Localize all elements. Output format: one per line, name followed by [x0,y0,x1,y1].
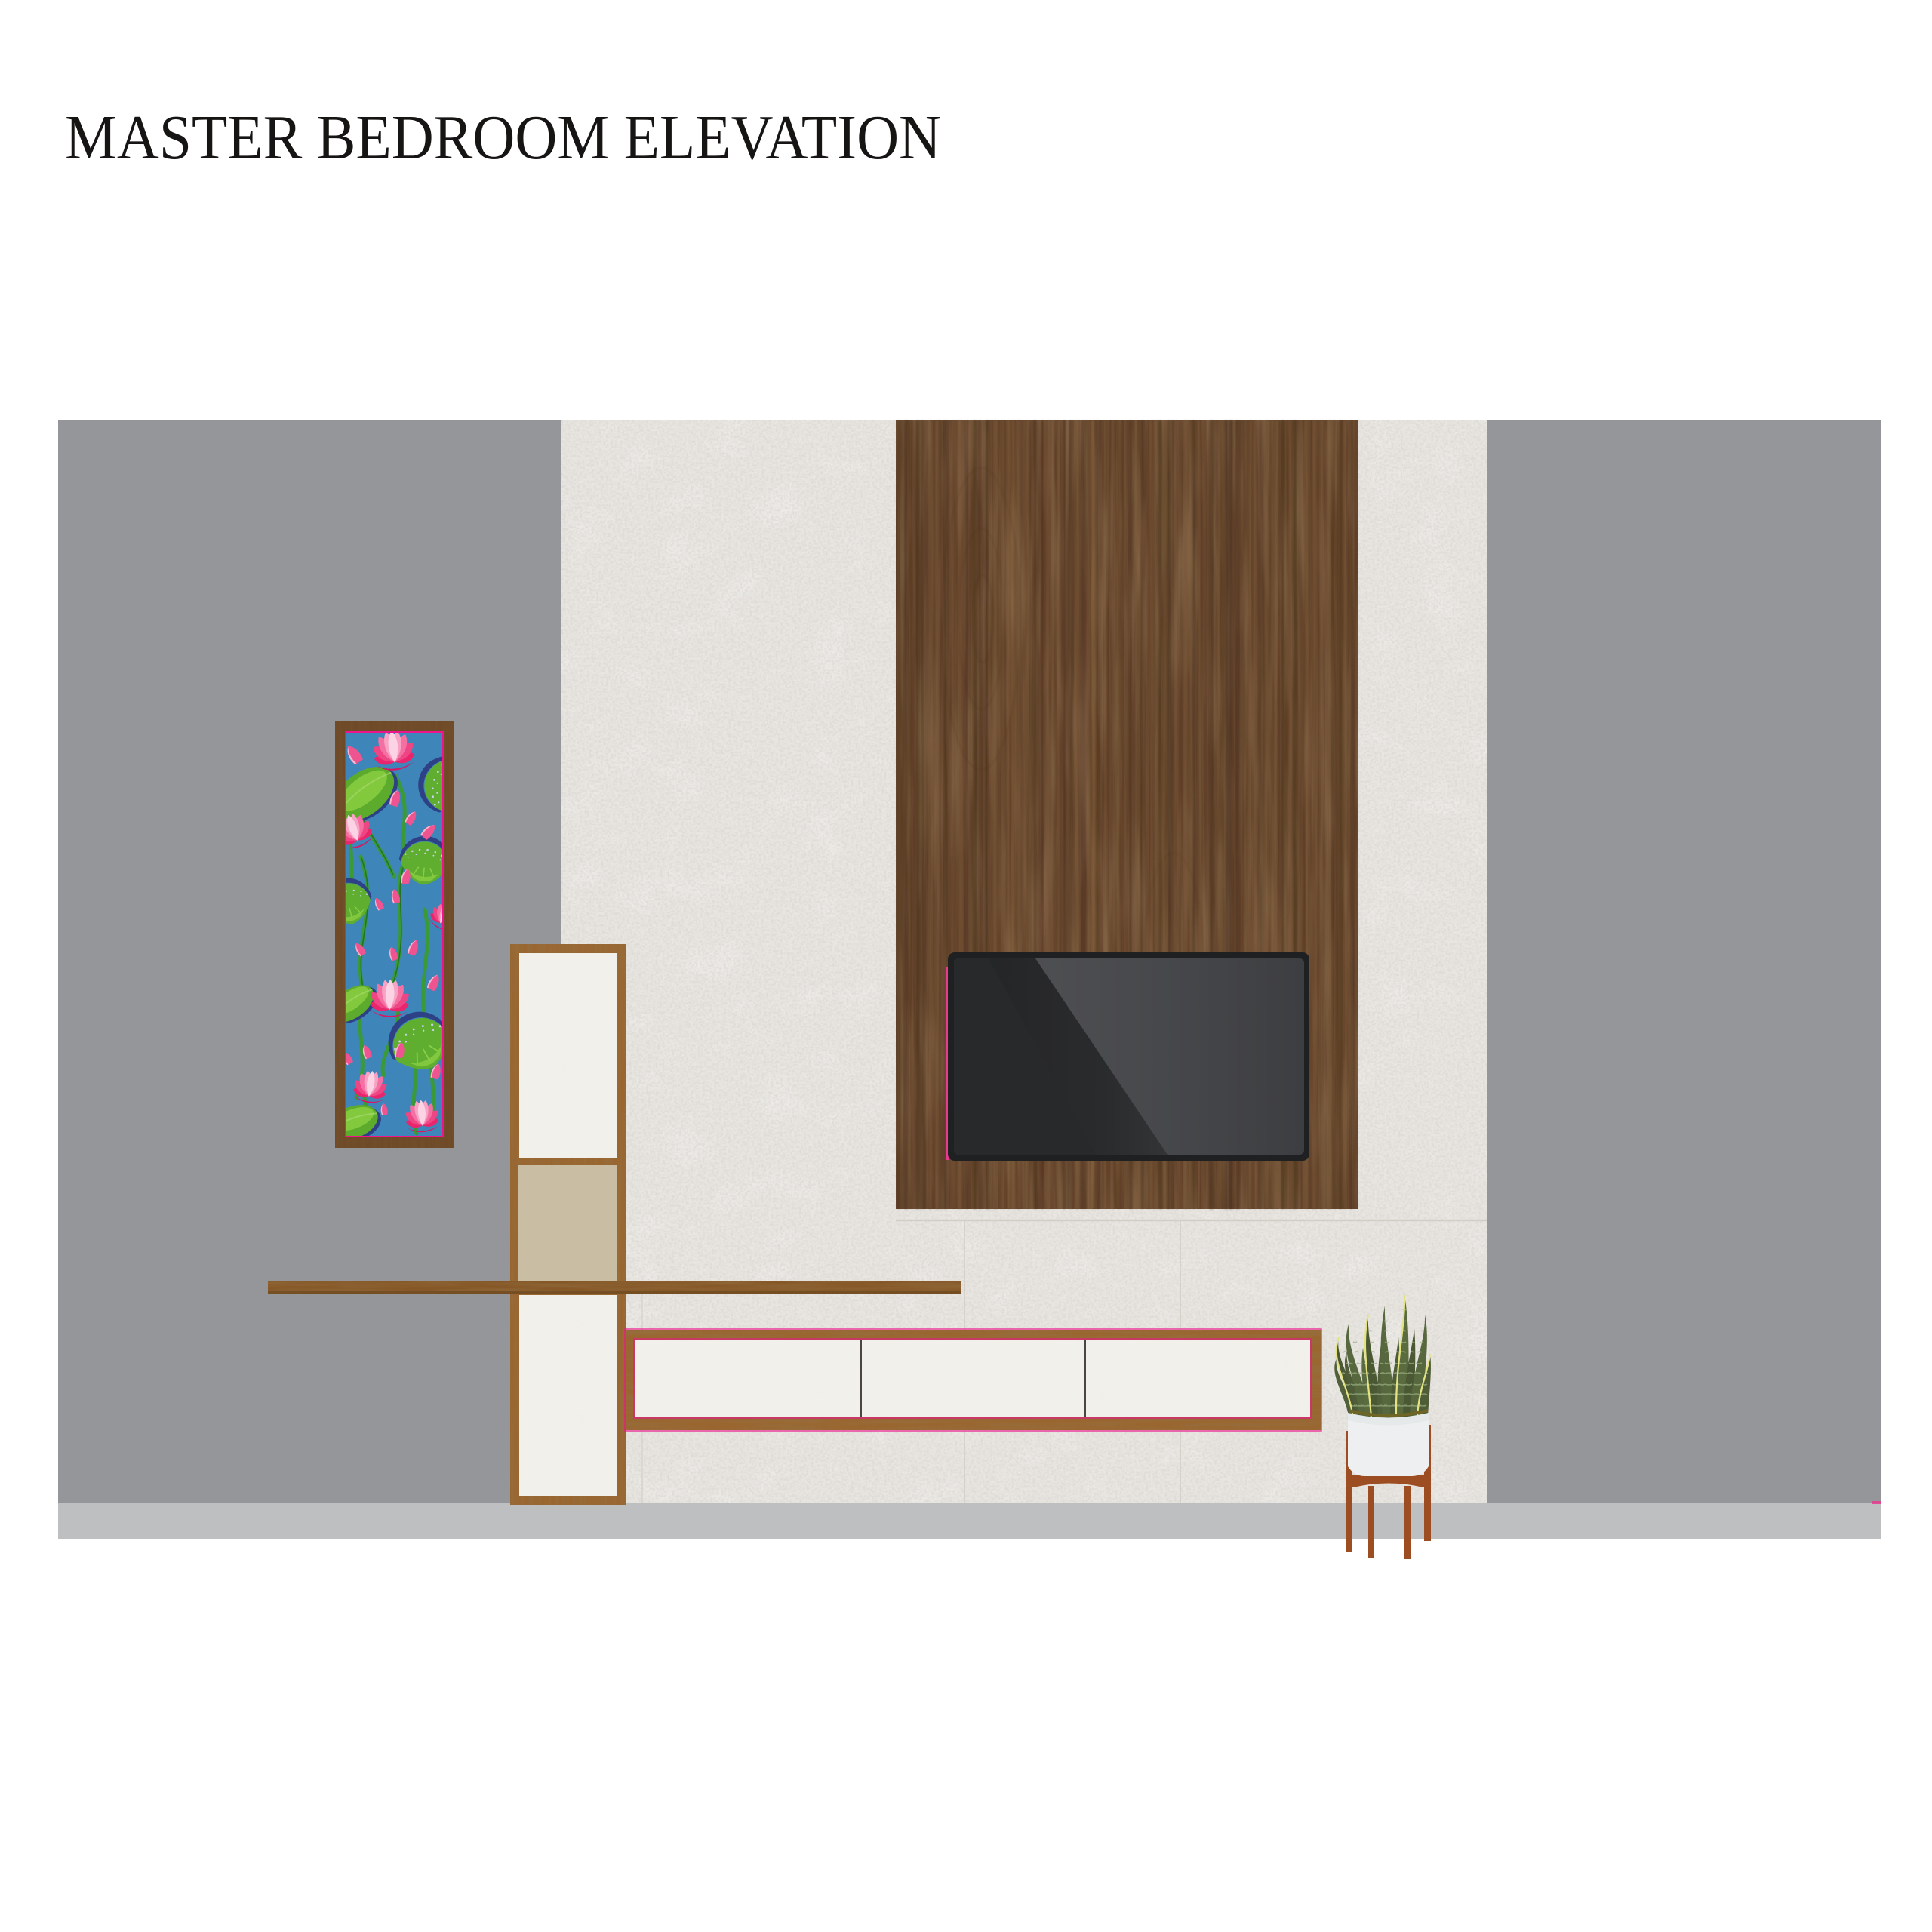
svg-text:MASTER BEDROOM ELEVATION: MASTER BEDROOM ELEVATION [65,103,941,173]
